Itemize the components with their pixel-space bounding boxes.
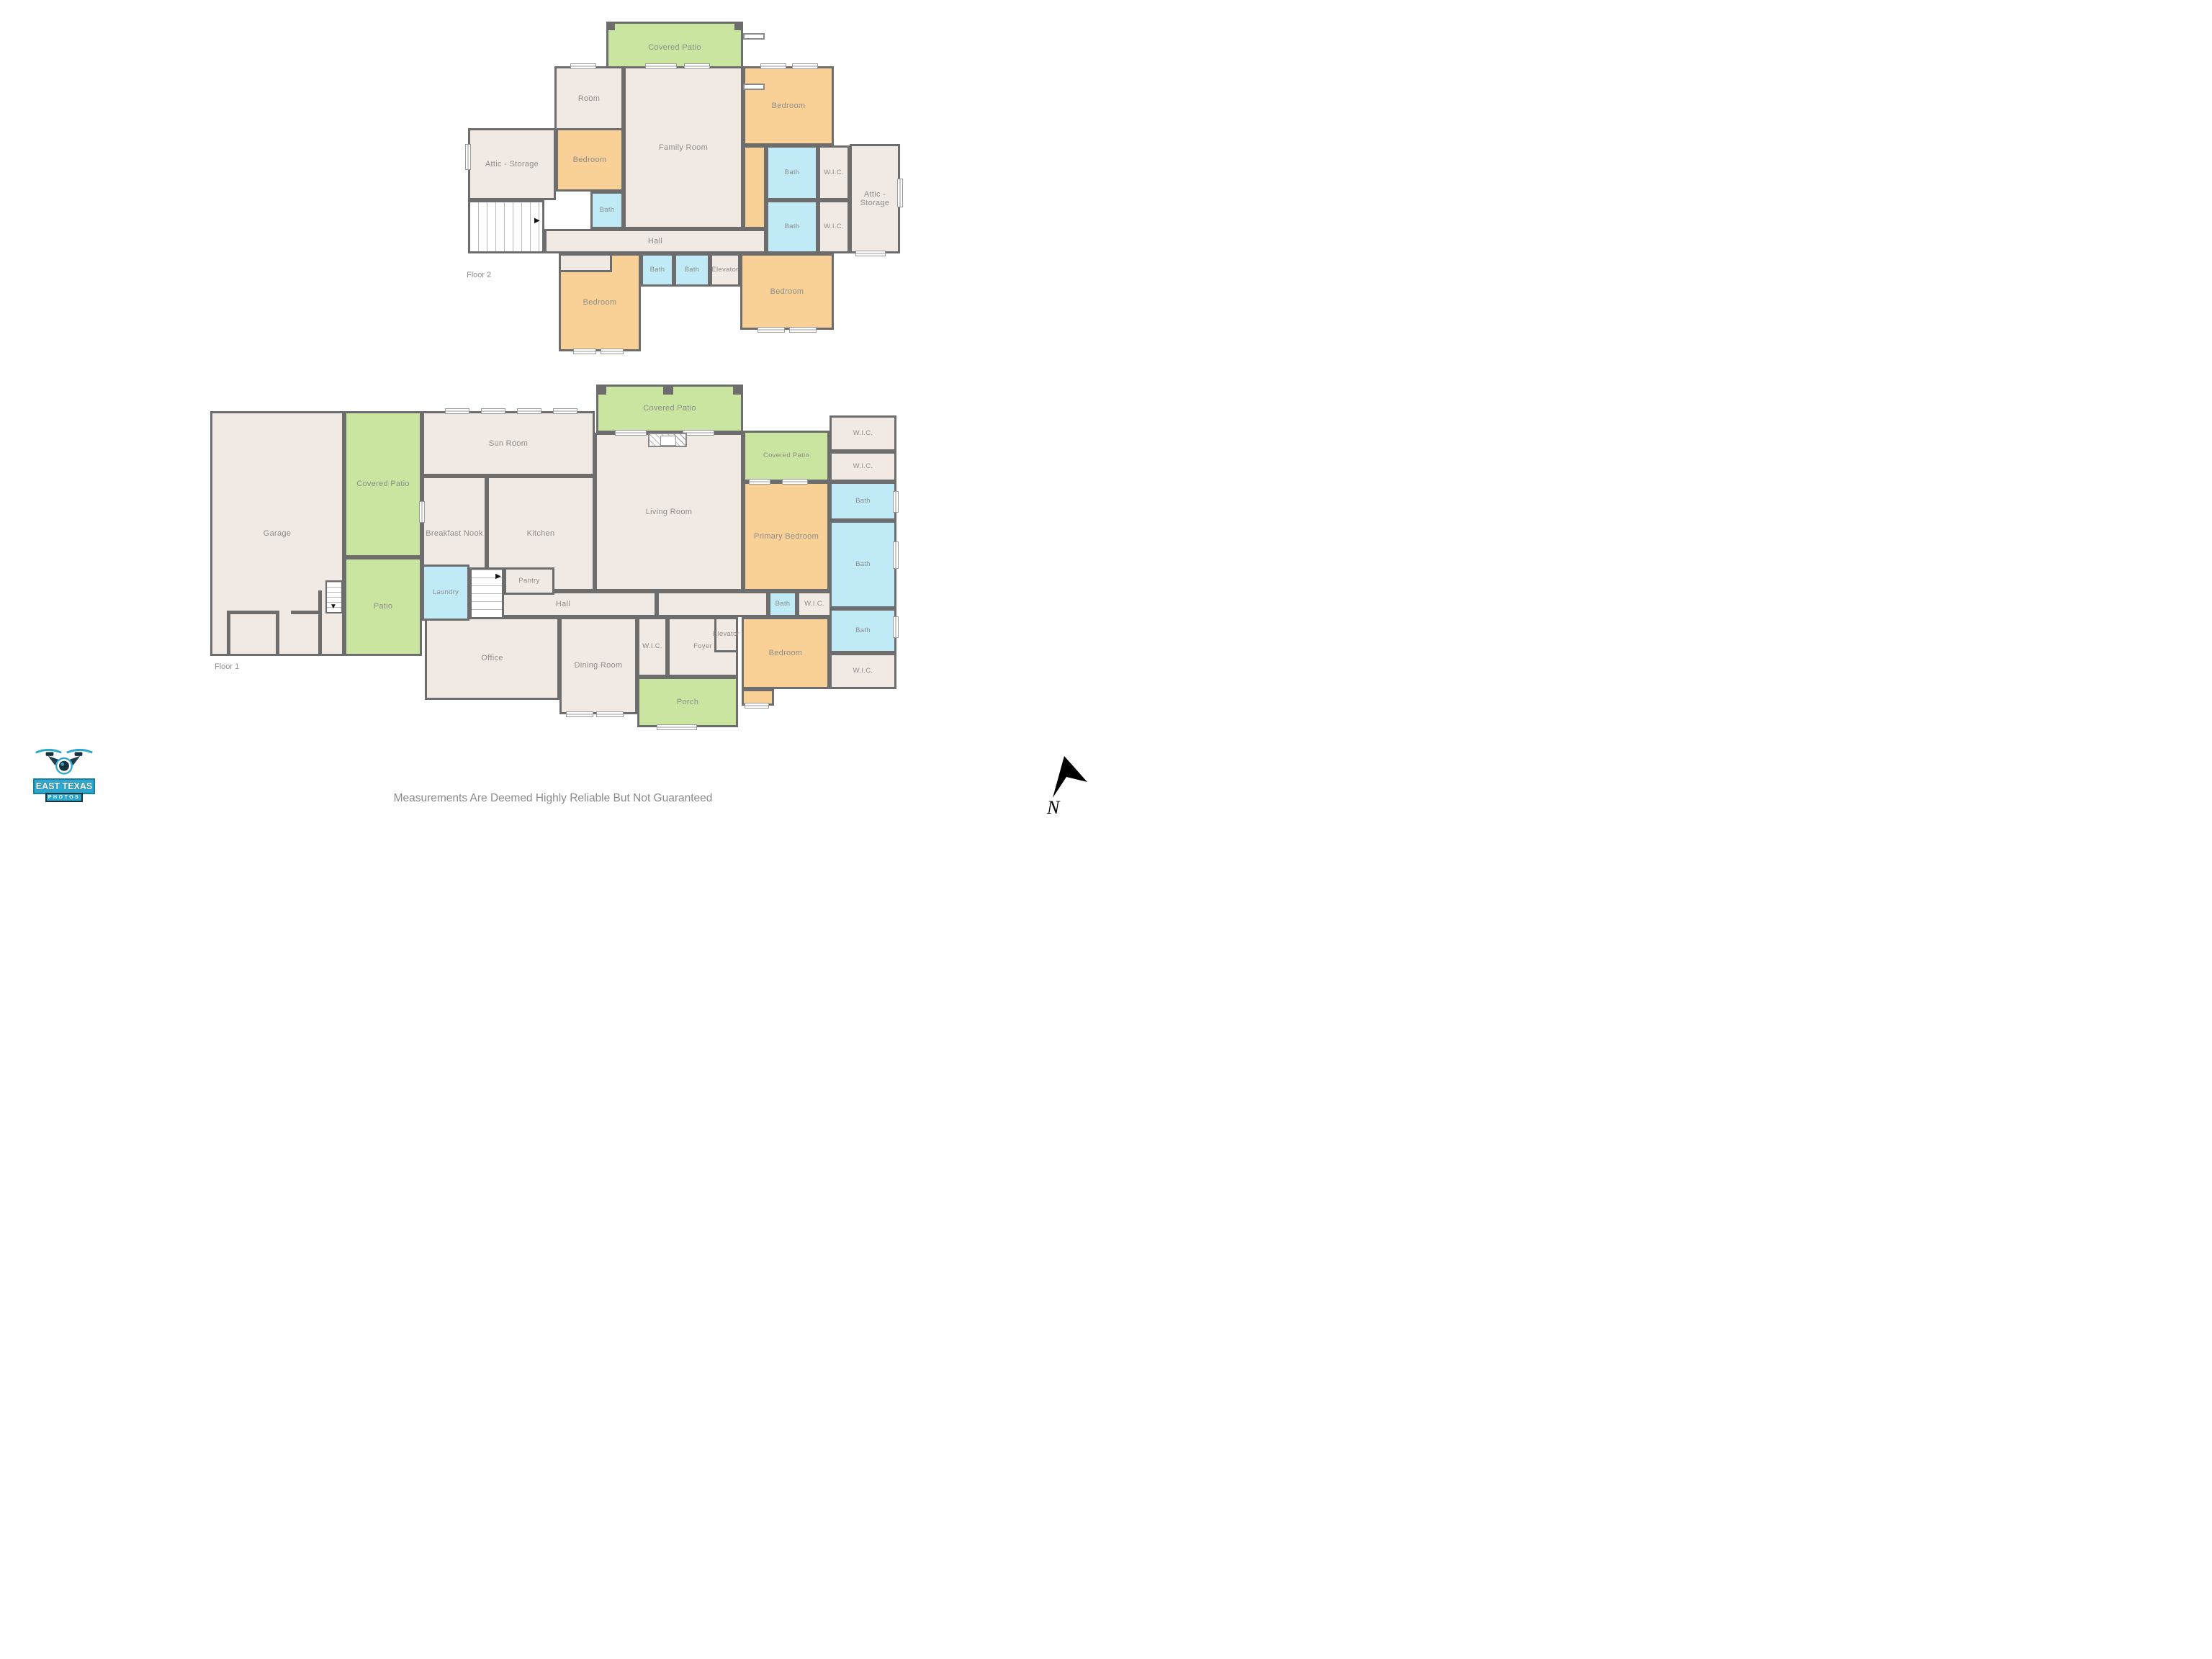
floor1-label-wic-right-2: W.I.C. [853, 463, 873, 470]
floor1-room-wic-right-2: W.I.C. [829, 451, 896, 482]
floor1-room-laundry: Laundry [422, 565, 469, 621]
floor1-stairs-direction-arrow-icon: ▼ [330, 603, 337, 611]
floor1-label-hall: Hall [556, 600, 570, 608]
floor1-label-bath-hall: Bath [775, 601, 791, 608]
floor1-label-garage: Garage [264, 529, 292, 538]
floor1-wall-segment [291, 611, 318, 614]
floor1-window [517, 408, 541, 414]
floor1-wall-segment [318, 590, 322, 656]
floor1-window [553, 408, 577, 414]
floor1-label-kitchen: Kitchen [527, 529, 555, 538]
floor1-window [445, 408, 469, 414]
floor1-label-wic-right-1: W.I.C. [853, 430, 873, 437]
floor1-room-pantry: Pantry [504, 567, 554, 595]
floor1-room-bedroom: Bedroom [742, 617, 829, 689]
floor1-window [893, 541, 899, 569]
floor1-room-primary-bedroom: Primary Bedroom [743, 482, 829, 591]
floor1-window [683, 430, 714, 436]
floor1-label-breakfast-nook: Breakfast Nook [426, 529, 482, 538]
floor1-room-hall-ext [657, 591, 768, 617]
floor1-patio-pillar [733, 385, 743, 395]
floor1-label-covered-patio-top: Covered Patio [643, 404, 696, 413]
floor1-label-dining-room: Dining Room [575, 661, 623, 670]
floor1-window [749, 479, 770, 485]
floor1-label-elevator: Elevator [713, 631, 739, 638]
floor1-window [566, 711, 593, 717]
floor1-patio-pillar [663, 385, 673, 395]
floor1-room-wic-hall: W.I.C. [797, 591, 832, 617]
floor1-window [615, 430, 647, 436]
north-compass: N [1043, 753, 1093, 818]
floor1-fireplace [648, 433, 687, 447]
floor1-room-living-room: Living Room [595, 433, 743, 591]
floor1-room-wic-right-1: W.I.C. [829, 415, 896, 451]
drone-icon [33, 746, 95, 775]
floorplan-canvas: Floor 2 Floor 1 Covered PatioRoomFamily … [0, 0, 1106, 829]
floor1-label-bedroom: Bedroom [769, 649, 803, 657]
floor1-stairs-direction-arrow-icon: ▶ [495, 573, 501, 580]
floor1-label-bath-right-2: Bath [855, 561, 871, 568]
floor1-wall-segment [227, 611, 230, 656]
floor1-room-patio: Patio [344, 557, 422, 656]
floor1-room-porch: Porch [637, 677, 738, 727]
floor1-patio-pillar [596, 385, 606, 395]
floor1-label-covered-patio-left: Covered Patio [356, 480, 410, 488]
floor1: GarageCovered PatioPatioSun RoomBreakfas… [0, 0, 1106, 829]
floor1-label-wic-hall: W.I.C. [804, 601, 824, 608]
floor1-label-porch: Porch [677, 698, 698, 706]
floor1-room-bath-right-1: Bath [829, 482, 896, 521]
floor1-label-bath-right-1: Bath [855, 498, 871, 505]
floor1-label-sun-room: Sun Room [489, 439, 528, 448]
floor1-room-dining-room: Dining Room [559, 617, 637, 714]
floor1-window [893, 616, 899, 638]
floor1-label-wic-right-3: W.I.C. [853, 667, 873, 675]
floor1-room-office: Office [425, 617, 559, 700]
floor1-window [893, 491, 899, 513]
floor1-window [782, 479, 808, 485]
floor1-label-primary-bedroom: Primary Bedroom [754, 532, 819, 541]
floor1-window [745, 703, 769, 709]
floor1-label-living-room: Living Room [646, 508, 692, 516]
floor1-label-wic-dining: W.I.C. [642, 643, 662, 650]
floor1-label-covered-patio-right: Covered Patio [763, 452, 809, 459]
north-arrow-icon: N [1043, 753, 1093, 818]
floor1-room-covered-patio-left: Covered Patio [344, 411, 422, 557]
disclaimer-text: Measurements Are Deemed Highly Reliable … [0, 792, 1106, 805]
floor1-window [596, 711, 624, 717]
floor1-room-bath-hall: Bath [768, 591, 797, 617]
floor1-label-office: Office [481, 654, 503, 662]
floor1-window [419, 501, 425, 523]
floor1-window [481, 408, 505, 414]
floor1-room-bath-right-2: Bath [829, 521, 896, 608]
floor1-label-pantry: Pantry [518, 577, 539, 585]
floor1-label-bath-right-3: Bath [855, 627, 871, 634]
floor1-label-laundry: Laundry [433, 589, 459, 596]
floor1-room-elevator: Elevator [714, 617, 738, 652]
floor1-room-bath-right-3: Bath [829, 608, 896, 653]
floor1-room-covered-patio-right: Covered Patio [743, 431, 829, 482]
floor1-window [657, 724, 697, 730]
floor1-room-sun-room: Sun Room [422, 411, 595, 476]
floor1-wall-segment [229, 611, 276, 614]
floor1-fireplace-firebox [660, 436, 676, 445]
floor1-room-wic-right-3: W.I.C. [829, 653, 896, 689]
floor1-room-wic-dining: W.I.C. [637, 617, 667, 677]
floor1-wall-segment [276, 611, 279, 656]
floor1-label-patio: Patio [374, 602, 393, 611]
floor1-label-foyer: Foyer [693, 643, 712, 650]
